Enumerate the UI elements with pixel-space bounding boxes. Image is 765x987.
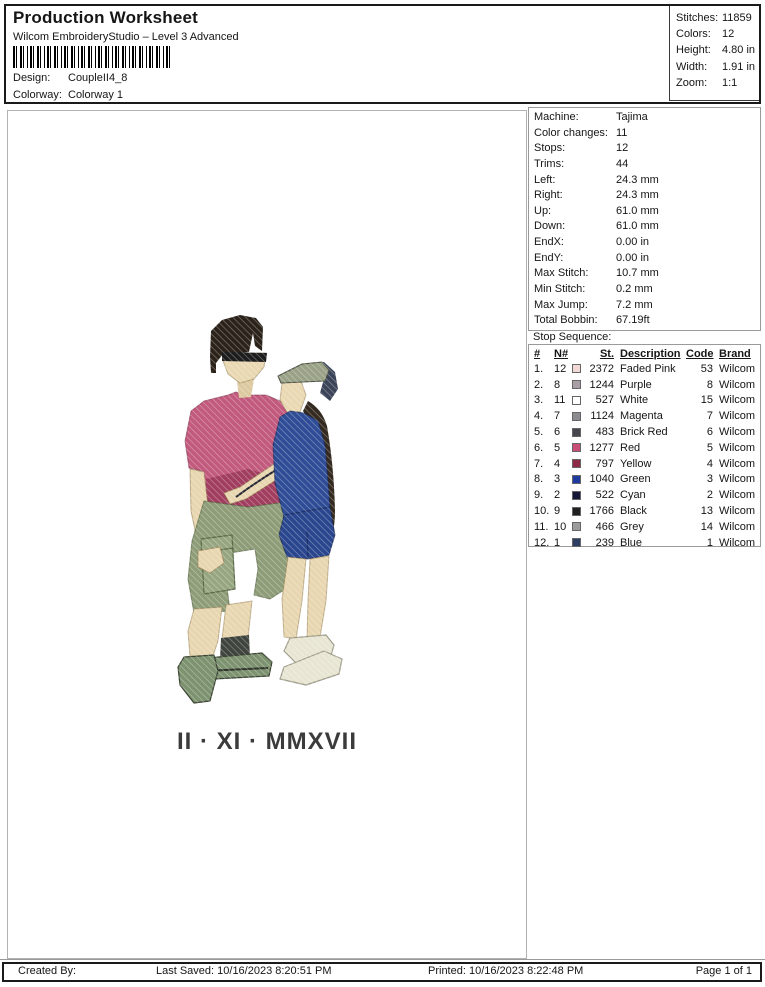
machine-info-row: Machine:Tajima: [534, 111, 760, 127]
stop-sequence-row: 5.6483Brick Red6Wilcom: [534, 424, 760, 440]
machine-info-row: Stops:12: [534, 142, 760, 158]
stop-sequence-row: 1.122372Faded Pink53Wilcom: [534, 361, 760, 377]
production-worksheet-page: Production Worksheet Wilcom EmbroiderySt…: [0, 0, 765, 987]
footer-page-number: Page 1 of 1: [696, 965, 752, 977]
stop-sequence-row: 2.81244Purple8Wilcom: [534, 377, 760, 393]
stat-height: Height: 4.80 in: [676, 44, 759, 60]
machine-info-row: Up:61.0 mm: [534, 205, 760, 221]
design-name-row: Design: CoupleII4_8: [13, 72, 127, 84]
stat-width: Width: 1.91 in: [676, 61, 759, 77]
machine-info-row: EndX:0.00 in: [534, 236, 760, 252]
design-date-text: II · XI · MMXVII: [8, 728, 526, 756]
thread-swatch: [572, 364, 581, 373]
colorway-value: Colorway 1: [68, 89, 123, 101]
design-value: CoupleII4_8: [68, 72, 127, 84]
machine-info-row: Max Stitch:10.7 mm: [534, 267, 760, 283]
stop-sequence-row: 12.1239Blue1Wilcom: [534, 535, 760, 551]
machine-info-row: Max Jump:7.2 mm: [534, 299, 760, 315]
stop-sequence-row: 3.11527White15Wilcom: [534, 393, 760, 409]
thread-swatch: [572, 428, 581, 437]
stop-sequence-row: 10.91766Black13Wilcom: [534, 503, 760, 519]
thread-swatch: [572, 396, 581, 405]
stat-stitches: Stitches: 11859: [676, 12, 759, 28]
stop-sequence-row: 9.2522Cyan2Wilcom: [534, 487, 760, 503]
stat-colors: Colors: 12: [676, 28, 759, 44]
thread-swatch: [572, 491, 581, 500]
thread-swatch: [572, 412, 581, 421]
stop-sequence-row: 6.51277Red5Wilcom: [534, 440, 760, 456]
thread-swatch: [572, 443, 581, 452]
machine-info-row: Trims:44: [534, 158, 760, 174]
machine-info-row: Left:24.3 mm: [534, 174, 760, 190]
colorway-label: Colorway:: [13, 89, 68, 101]
design-label: Design:: [13, 72, 68, 84]
stop-sequence-row: 11.10466Grey14Wilcom: [534, 519, 760, 535]
thread-swatch: [572, 507, 581, 516]
stop-sequence-row: 7.4797Yellow4Wilcom: [534, 456, 760, 472]
machine-info-row: Color changes:11: [534, 127, 760, 143]
design-canvas: II · XI · MMXVII: [7, 110, 527, 959]
thread-swatch: [572, 522, 581, 531]
stop-sequence-row: 4.71124Magenta7Wilcom: [534, 408, 760, 424]
footer-printed: Printed: 10/16/2023 8:22:48 PM: [428, 965, 583, 977]
stitch-texture-overlay: [173, 309, 351, 711]
stop-sequence-header: # N# St. Description Code Brand: [534, 346, 760, 361]
stop-sequence-row: 8.31040Green3Wilcom: [534, 472, 760, 488]
thread-swatch: [572, 380, 581, 389]
machine-info-row: Total Bobbin:67.19ft: [534, 314, 760, 330]
thread-swatch: [572, 459, 581, 468]
footer: Created By: Last Saved: 10/16/2023 8:20:…: [2, 962, 762, 982]
embroidery-design-preview: [8, 111, 526, 958]
stop-sequence-table: # N# St. Description Code Brand 1.122372…: [528, 344, 761, 547]
machine-info-row: EndY:0.00 in: [534, 252, 760, 268]
machine-info-row: Right:24.3 mm: [534, 189, 760, 205]
stop-sequence-title: Stop Sequence:: [533, 331, 611, 343]
colorway-row: Colorway: Colorway 1: [13, 89, 123, 101]
machine-info-row: Min Stitch:0.2 mm: [534, 283, 760, 299]
machine-info-row: Down:61.0 mm: [534, 220, 760, 236]
design-barcode: [13, 46, 171, 68]
thread-swatch: [572, 475, 581, 484]
stat-zoom: Zoom: 1:1: [676, 77, 759, 93]
footer-created-by: Created By:: [18, 965, 76, 977]
design-stats-box: Stitches: 11859 Colors: 12 Height: 4.80 …: [669, 6, 759, 101]
machine-info-panel: Machine:Tajima Color changes:11 Stops:12…: [528, 107, 761, 331]
thread-swatch: [572, 538, 581, 547]
page-title: Production Worksheet: [13, 8, 198, 28]
app-subtitle: Wilcom EmbroideryStudio – Level 3 Advanc…: [13, 31, 239, 43]
footer-last-saved: Last Saved: 10/16/2023 8:20:51 PM: [156, 965, 332, 977]
header: Production Worksheet Wilcom EmbroiderySt…: [4, 4, 761, 104]
footer-divider: [0, 959, 765, 960]
